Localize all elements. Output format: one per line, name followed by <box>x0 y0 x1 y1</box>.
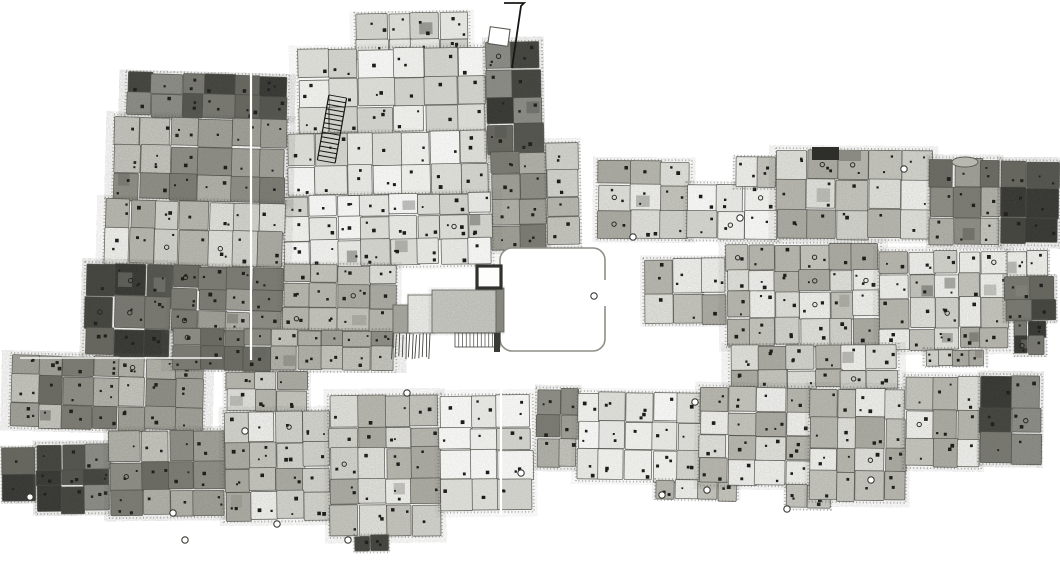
socket-circle <box>274 521 280 527</box>
socket-circle <box>345 537 351 543</box>
roof-outline <box>488 27 510 47</box>
stipple-texture <box>110 430 226 516</box>
stipple-texture <box>809 388 905 501</box>
socket-circle <box>737 215 743 221</box>
stipple-texture <box>1015 321 1045 355</box>
palm-fence-line <box>406 333 407 359</box>
stipple-texture <box>490 152 548 249</box>
stipple-texture <box>284 193 492 268</box>
stipple-texture <box>113 116 286 203</box>
stipple-texture <box>735 157 777 187</box>
socket-circle <box>784 506 790 512</box>
socket-circle <box>182 537 188 543</box>
building-cluster-north-block <box>279 9 581 269</box>
stipple-texture <box>730 345 897 389</box>
stipple-texture <box>688 184 777 240</box>
stipple-texture <box>288 131 488 196</box>
stipple-texture <box>1000 162 1059 245</box>
roof-cap <box>839 151 861 161</box>
plaza-gate-gap <box>598 280 608 306</box>
stipple-texture <box>173 329 395 371</box>
stipple-texture <box>171 266 283 334</box>
stipple-texture <box>3 448 38 500</box>
socket-circle <box>27 494 33 500</box>
socket-circle <box>404 390 410 396</box>
stipple-texture <box>880 251 1009 350</box>
stipple-texture <box>980 375 1041 463</box>
stipple-texture <box>930 159 1001 245</box>
stipple-texture <box>645 259 727 324</box>
socket-circle <box>630 234 636 240</box>
socket-circle <box>591 293 597 299</box>
stipple-texture <box>283 265 395 331</box>
stipple-texture <box>37 444 111 513</box>
stipple-texture <box>329 395 440 536</box>
stipple-texture <box>699 387 810 485</box>
stipple-texture <box>537 389 579 467</box>
mound <box>952 157 978 167</box>
stipple-texture <box>84 263 172 357</box>
stipple-texture <box>1008 251 1048 277</box>
tower <box>477 266 501 288</box>
stipple-texture <box>546 143 580 246</box>
roof-cap <box>812 147 839 160</box>
stipple-texture <box>356 536 388 551</box>
stipple-texture <box>727 244 881 346</box>
stipple-texture <box>905 376 981 467</box>
socket-circle <box>659 492 665 498</box>
socket-circle <box>242 428 248 434</box>
socket-circle <box>170 510 176 516</box>
stipple-texture <box>224 411 330 520</box>
stipple-texture <box>578 392 701 480</box>
stipple-texture <box>226 372 306 413</box>
stipple-texture <box>439 395 532 511</box>
stipple-texture <box>1005 277 1055 321</box>
stipple-texture <box>925 349 985 365</box>
stipple-texture <box>777 150 931 239</box>
stipple-texture <box>127 72 288 120</box>
stipple-texture <box>105 199 285 269</box>
stipple-texture <box>496 288 504 332</box>
socket-circle <box>692 399 698 405</box>
plan-canvas <box>0 0 1060 578</box>
stipple-texture <box>298 47 486 134</box>
socket-circle <box>518 470 524 476</box>
socket-circle <box>868 477 874 483</box>
plaza-courtyard <box>500 248 605 351</box>
post <box>494 333 500 352</box>
socket-circle <box>901 166 907 172</box>
stipple-texture <box>598 161 691 239</box>
stipple-texture <box>408 295 434 333</box>
stipple-texture <box>432 290 496 333</box>
settlement-plan-svg <box>0 0 1060 578</box>
socket-circle <box>704 487 710 493</box>
